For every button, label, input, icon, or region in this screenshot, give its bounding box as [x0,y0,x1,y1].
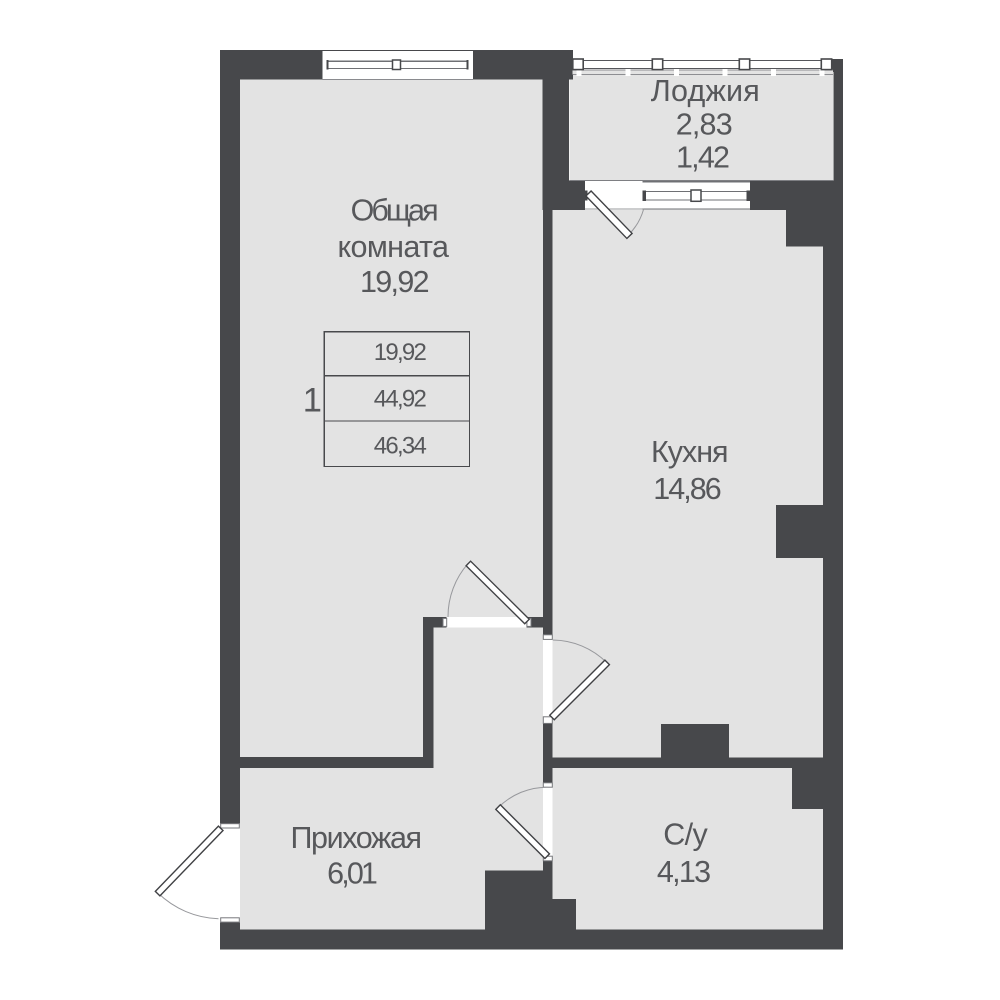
svg-text:1: 1 [303,382,322,420]
svg-text:комната: комната [337,230,449,264]
svg-text:14,86: 14,86 [653,472,722,506]
svg-text:19,92: 19,92 [360,265,430,299]
svg-text:44,92: 44,92 [374,386,427,413]
svg-text:1,42: 1,42 [676,141,730,175]
svg-text:19,92: 19,92 [374,339,427,366]
svg-text:6,01: 6,01 [327,857,378,891]
svg-text:Прихожая: Прихожая [291,821,423,855]
svg-text:2,83: 2,83 [676,108,733,142]
svg-text:С/у: С/у [663,817,708,851]
svg-text:46,34: 46,34 [374,432,427,459]
svg-text:Кухня: Кухня [651,435,729,469]
svg-text:Лоджия: Лоджия [651,74,760,108]
svg-text:4,13: 4,13 [657,855,711,889]
svg-text:Общая: Общая [351,194,439,228]
